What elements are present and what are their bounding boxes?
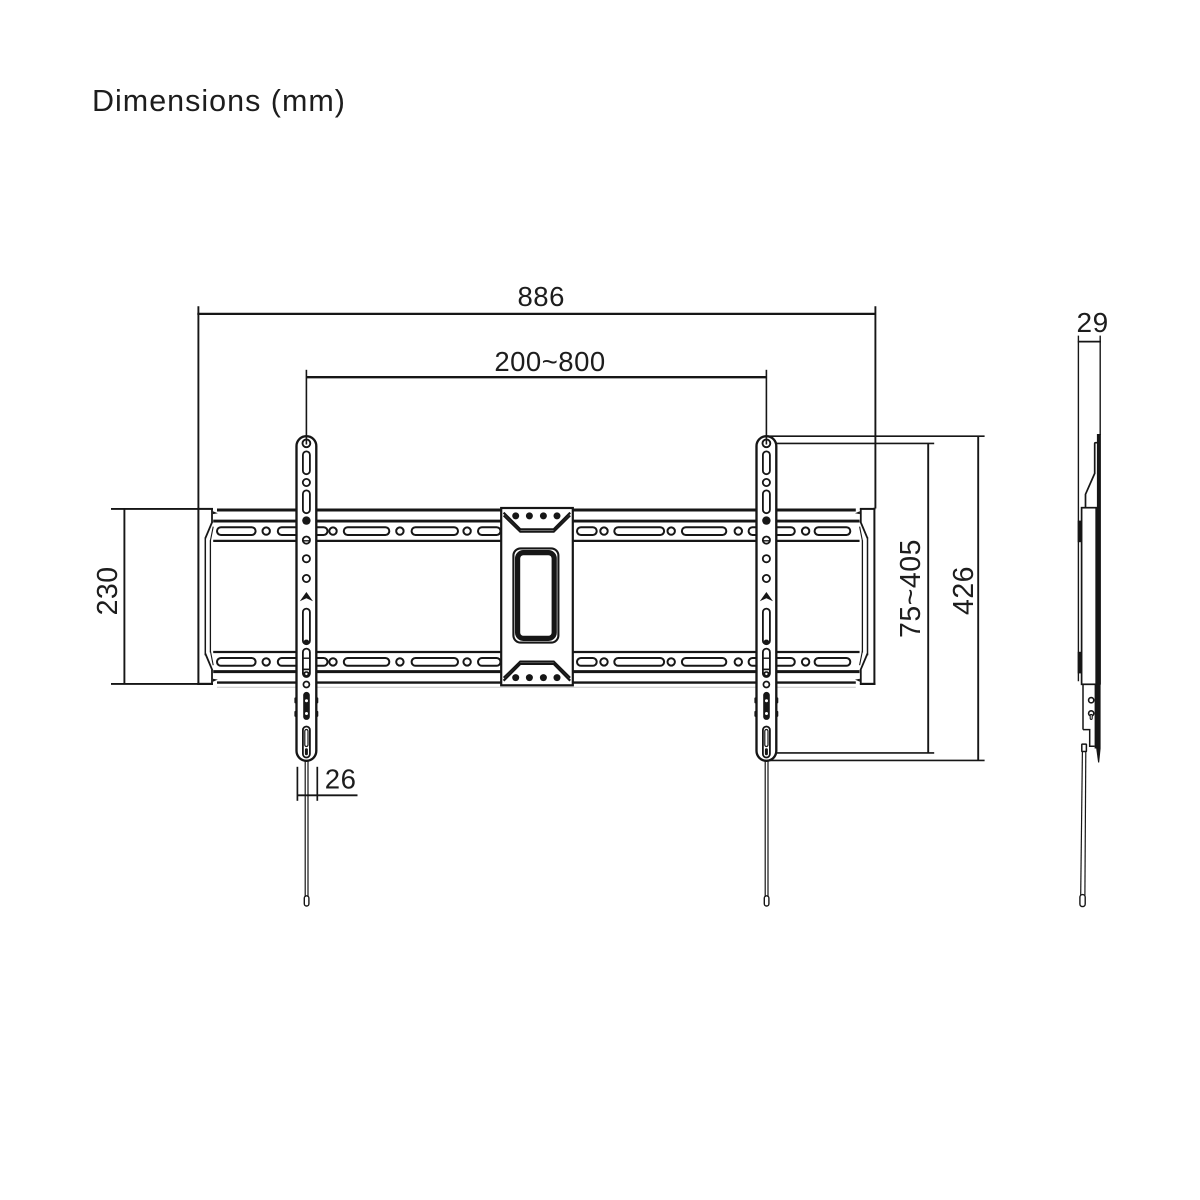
svg-text:230: 230 [92,566,124,615]
svg-text:29: 29 [1077,307,1109,338]
svg-text:26: 26 [325,764,357,795]
svg-text:886: 886 [518,281,565,312]
svg-text:75~405: 75~405 [895,539,927,638]
svg-text:426: 426 [948,566,980,615]
svg-text:200~800: 200~800 [494,346,605,377]
